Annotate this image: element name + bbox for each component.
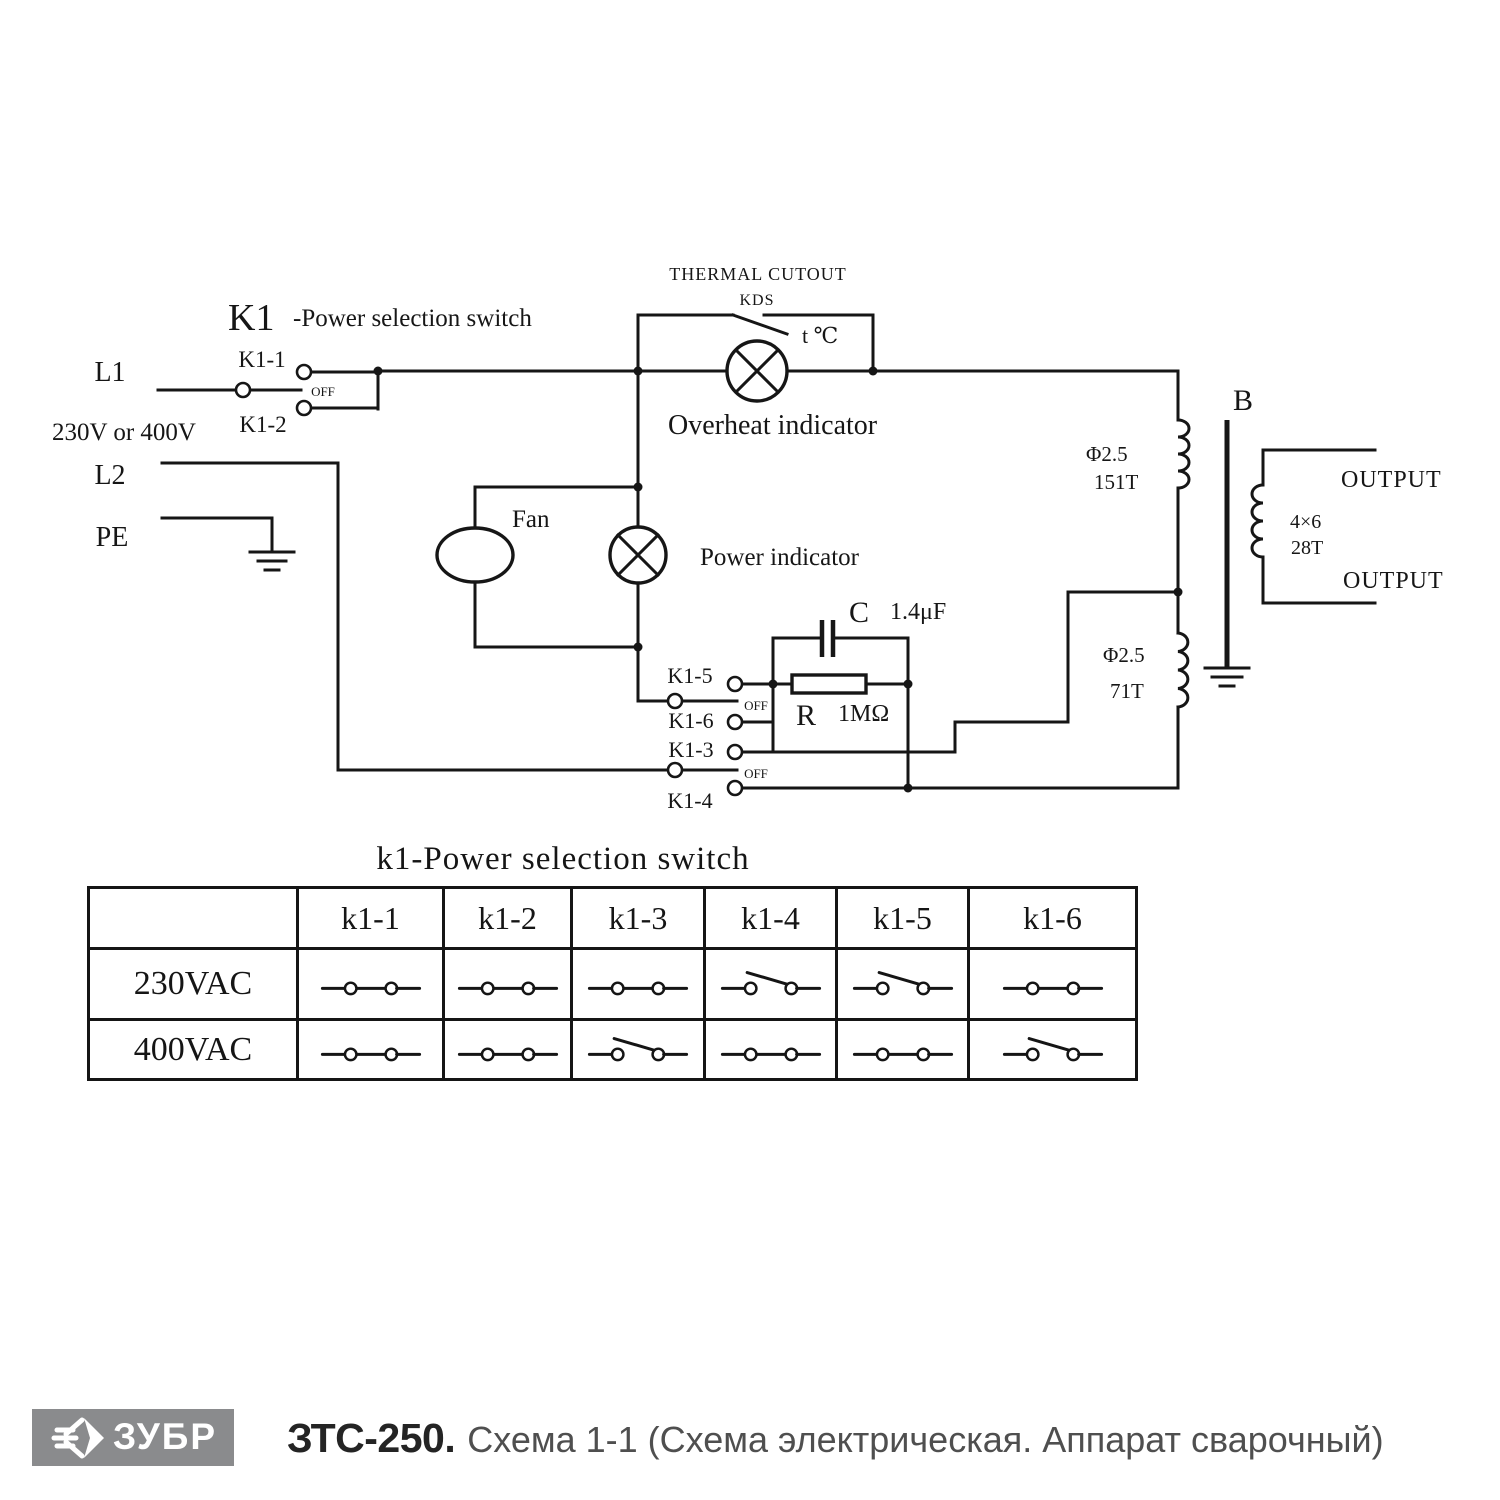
switch-symbol (585, 1030, 691, 1070)
power-indicator-label: Power indicator (700, 544, 860, 571)
resistor-name: R (796, 699, 816, 732)
pe-label: PE (96, 522, 129, 553)
row-label-400vac: 400VAC (89, 1020, 298, 1080)
switch-symbol (585, 964, 691, 1004)
table-header-row: k1-1 k1-2 k1-3 k1-4 k1-5 k1-6 (89, 888, 1137, 949)
power-lamp-symbol (610, 527, 666, 583)
switch-symbol (455, 1030, 561, 1070)
secondary-turns-label: 28T (1291, 537, 1323, 559)
zubr-logo: ЗУБР (32, 1409, 234, 1466)
off-bottom-label: OFF (744, 766, 768, 781)
off-top-label: OFF (311, 384, 335, 399)
cell-400vac-k1-5 (837, 1020, 969, 1080)
fan-symbol (437, 528, 513, 582)
power-selection-table: k1-1 k1-2 k1-3 k1-4 k1-5 k1-6 230VAC 400… (87, 886, 1138, 1081)
ground-symbol-core (1205, 668, 1249, 686)
cell-400vac-k1-2 (444, 1020, 572, 1080)
temperature-label: t ℃ (802, 323, 838, 348)
output-bottom-label: OUTPUT (1343, 568, 1444, 594)
zubr-logo-icon (49, 1414, 107, 1462)
k1-1-label: K1-1 (238, 347, 285, 372)
switch-symbol (1000, 964, 1106, 1004)
column-header-k1-6: k1-6 (969, 888, 1137, 949)
cell-400vac-k1-1 (298, 1020, 444, 1080)
cell-400vac-k1-6 (969, 1020, 1137, 1080)
scheme-description: Схема 1-1 (Схема электрическая. Аппарат … (467, 1419, 1383, 1461)
footer: ЗУБР ЗТС-250. Схема 1-1 (Схема электриче… (0, 1405, 1500, 1475)
page: THERMAL CUTOUT KDS t ℃ K1 -Power selecti… (0, 0, 1500, 1500)
switch-symbol (718, 964, 824, 1004)
table-title: k1-Power selection switch (293, 841, 833, 878)
k1-2-label: K1-2 (239, 412, 286, 437)
column-header-k1-1: k1-1 (298, 888, 444, 949)
cell-230vac-k1-1 (298, 949, 444, 1020)
resistor-symbol (792, 675, 866, 693)
capacitor-symbol (822, 620, 833, 657)
column-header-k1-3: k1-3 (572, 888, 705, 949)
column-header-k1-5: k1-5 (837, 888, 969, 949)
output-top-label: OUTPUT (1341, 467, 1442, 493)
overheat-lamp-symbol (727, 341, 787, 401)
brand-name: ЗУБР (113, 1418, 217, 1457)
fan-label: Fan (512, 506, 550, 533)
k1-title: K1 (228, 297, 274, 339)
winding-71t-diameter: Φ2.5 (1103, 643, 1145, 667)
l2-label: L2 (94, 460, 125, 491)
cell-230vac-k1-3 (572, 949, 705, 1020)
kds-label: KDS (739, 292, 774, 309)
winding-71t-turns: 71T (1110, 679, 1144, 703)
cell-230vac-k1-6 (969, 949, 1137, 1020)
winding-151t-turns: 151T (1094, 470, 1139, 494)
cell-400vac-k1-3 (572, 1020, 705, 1080)
l1-label: L1 (94, 357, 125, 388)
footer-caption: ЗТС-250. Схема 1-1 (Схема электрическая.… (287, 1415, 1384, 1462)
winding-151t-diameter: Φ2.5 (1086, 442, 1128, 466)
core-b-label: B (1233, 384, 1253, 417)
resistor-value: 1MΩ (838, 701, 889, 727)
table-row-230vac: 230VAC (89, 949, 1137, 1020)
table-row-400vac: 400VAC (89, 1020, 1137, 1080)
k1-4-label: K1-4 (667, 788, 712, 813)
circuit-schematic: THERMAL CUTOUT KDS t ℃ K1 -Power selecti… (0, 0, 1500, 830)
cell-230vac-k1-2 (444, 949, 572, 1020)
k1-3-label: K1-3 (668, 737, 713, 762)
row-label-230vac: 230VAC (89, 949, 298, 1020)
switch-symbol (718, 1030, 824, 1070)
switch-symbol (850, 1030, 956, 1070)
cell-230vac-k1-4 (705, 949, 837, 1020)
capacitor-value: 1.4μF (890, 599, 946, 625)
switch-symbol (318, 1030, 424, 1070)
column-header-k1-2: k1-2 (444, 888, 572, 949)
switch-symbol (455, 964, 561, 1004)
table-corner-cell (89, 888, 298, 949)
thermal-cutout-label: THERMAL CUTOUT (669, 264, 847, 284)
switch-symbol (318, 964, 424, 1004)
cell-400vac-k1-4 (705, 1020, 837, 1080)
cell-230vac-k1-5 (837, 949, 969, 1020)
switch-symbol (1000, 1030, 1106, 1070)
off-mid-label: OFF (744, 698, 768, 713)
k1-subtitle: -Power selection switch (293, 305, 532, 332)
capacitor-name: C (849, 596, 869, 629)
secondary-wire-label: 4×6 (1290, 511, 1321, 533)
ground-symbol-pe (250, 552, 294, 570)
column-header-k1-4: k1-4 (705, 888, 837, 949)
voltage-label: 230V or 400V (52, 419, 196, 446)
model-number: ЗТС-250. (287, 1415, 455, 1462)
k1-5-label: K1-5 (667, 663, 712, 688)
switch-symbol (850, 964, 956, 1004)
overheat-indicator-label: Overheat indicator (668, 410, 878, 441)
k1-6-label: K1-6 (668, 708, 713, 733)
